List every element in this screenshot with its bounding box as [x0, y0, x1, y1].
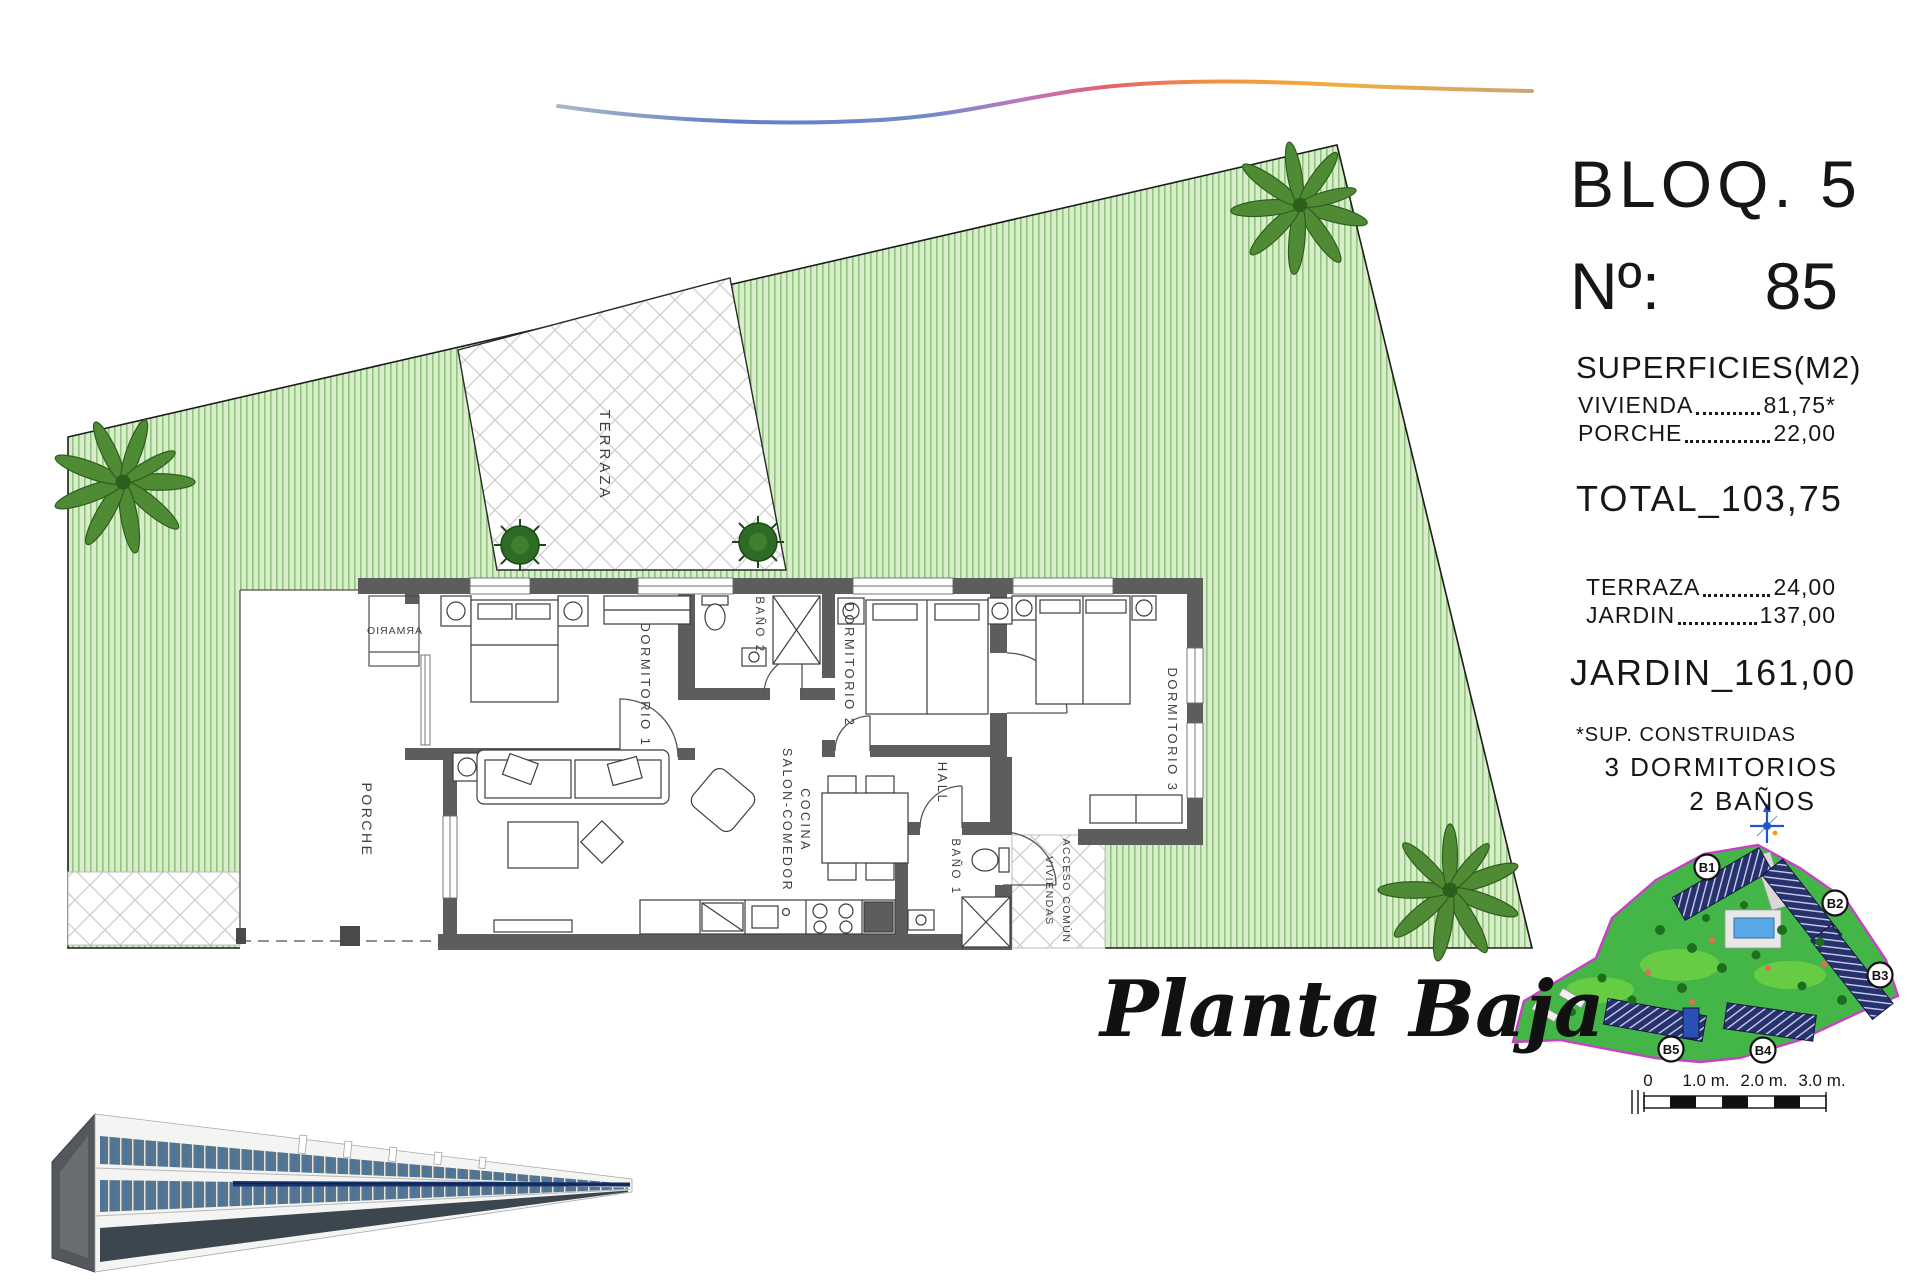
unit-number-label: Nº:: [1570, 248, 1660, 324]
surface-row-porche: PORCHE 22,00: [1578, 420, 1836, 447]
feature-bedrooms: 3 DORMITORIOS: [1570, 752, 1838, 783]
building-render: [52, 1114, 632, 1272]
porch-column: [236, 928, 246, 944]
feature-bathrooms: 2 BAÑOS: [1570, 786, 1816, 817]
room-label-bano2: BAÑO 2: [753, 596, 766, 653]
bush-icon: [732, 516, 784, 568]
site-map-label-b2: B2: [1827, 896, 1844, 911]
left-paved-strip: [68, 872, 240, 945]
scale-bar: 0 1.0 m. 2.0 m. 3.0 m.: [1632, 1071, 1846, 1114]
total-label: TOTAL: [1576, 478, 1699, 520]
surfaces-title: SUPERFICIES(M2): [1576, 350, 1861, 386]
room-label-acceso-2: VIVIENDAS: [1043, 856, 1055, 926]
room-label-acceso-1: ACCESO COMÚN: [1060, 839, 1073, 944]
garden-total-row: JARDIN _ 161,00: [1570, 652, 1846, 694]
surface-label: VIVIENDA: [1578, 392, 1693, 419]
total-separator: _: [1699, 478, 1721, 520]
dotted-leader: [1678, 622, 1757, 625]
surface-value: 22,00: [1773, 420, 1836, 447]
room-label-armario: ARMARIO: [366, 625, 422, 637]
brand-swoosh: [558, 82, 1532, 123]
room-label-dormitorio2: DORMITORIO 2: [842, 602, 857, 727]
room-label-dormitorio1: DORMITORIO 1: [638, 622, 653, 747]
dotted-leader: [1703, 594, 1770, 597]
room-label-salon-2: COCINA: [798, 788, 812, 852]
bush-icon: [494, 519, 546, 571]
acceso-paved-strip: [1012, 835, 1105, 948]
site-map-label-b1: B1: [1699, 860, 1716, 875]
outdoor-row-terraza: TERRAZA 24,00: [1586, 574, 1836, 601]
room-label-bano1: BAÑO 1: [949, 838, 962, 895]
block-title: BLOQ. 5: [1570, 146, 1862, 222]
outdoor-row-jardin: JARDIN 137,00: [1586, 602, 1836, 629]
surface-row-vivienda: VIVIENDA 81,75*: [1578, 392, 1836, 419]
room-label-hall: HALL: [935, 762, 950, 805]
plan-sheet: TERRAZA PORCHE ARMARIO DORMITORIO 1 BAÑO…: [0, 0, 1920, 1280]
scale-label-1: 1.0 m.: [1682, 1071, 1729, 1090]
scale-label-3: 3.0 m.: [1798, 1071, 1845, 1090]
plan-title: Planta Baja: [1100, 964, 1490, 1055]
room-label-porche: PORCHE: [359, 783, 375, 858]
outdoor-value: 137,00: [1760, 602, 1836, 629]
outdoor-value: 24,00: [1773, 574, 1836, 601]
dotted-leader: [1685, 440, 1770, 443]
surface-label: PORCHE: [1578, 420, 1682, 447]
unit-number-row: Nº: 85: [1570, 248, 1838, 324]
garden-total-label: JARDIN: [1570, 652, 1712, 694]
site-map-label-b3: B3: [1872, 968, 1889, 983]
total-row: TOTAL _ 103,75: [1576, 478, 1842, 520]
site-map-label-b4: B4: [1755, 1043, 1772, 1058]
surface-value: 81,75*: [1763, 392, 1836, 419]
garden-total-value: 161,00: [1734, 652, 1856, 694]
outdoor-label: JARDIN: [1586, 602, 1675, 629]
footnote: *SUP. CONSTRUIDAS: [1576, 724, 1796, 747]
room-label-salon-1: SALON-COMEDOR: [780, 748, 794, 892]
room-label-terraza: TERRAZA: [596, 409, 613, 500]
dotted-leader: [1696, 412, 1760, 415]
unit-number-value: 85: [1765, 248, 1838, 324]
terraza-area: [458, 278, 786, 570]
scale-label-0: 0: [1643, 1071, 1652, 1090]
outdoor-label: TERRAZA: [1586, 574, 1700, 601]
total-value: 103,75: [1721, 478, 1843, 520]
room-label-dormitorio3: DORMITORIO 3: [1165, 667, 1180, 792]
garden-total-separator: _: [1712, 652, 1734, 694]
scale-label-2: 2.0 m.: [1740, 1071, 1787, 1090]
site-map-label-b5: B5: [1663, 1042, 1680, 1057]
porch-column: [340, 926, 360, 946]
